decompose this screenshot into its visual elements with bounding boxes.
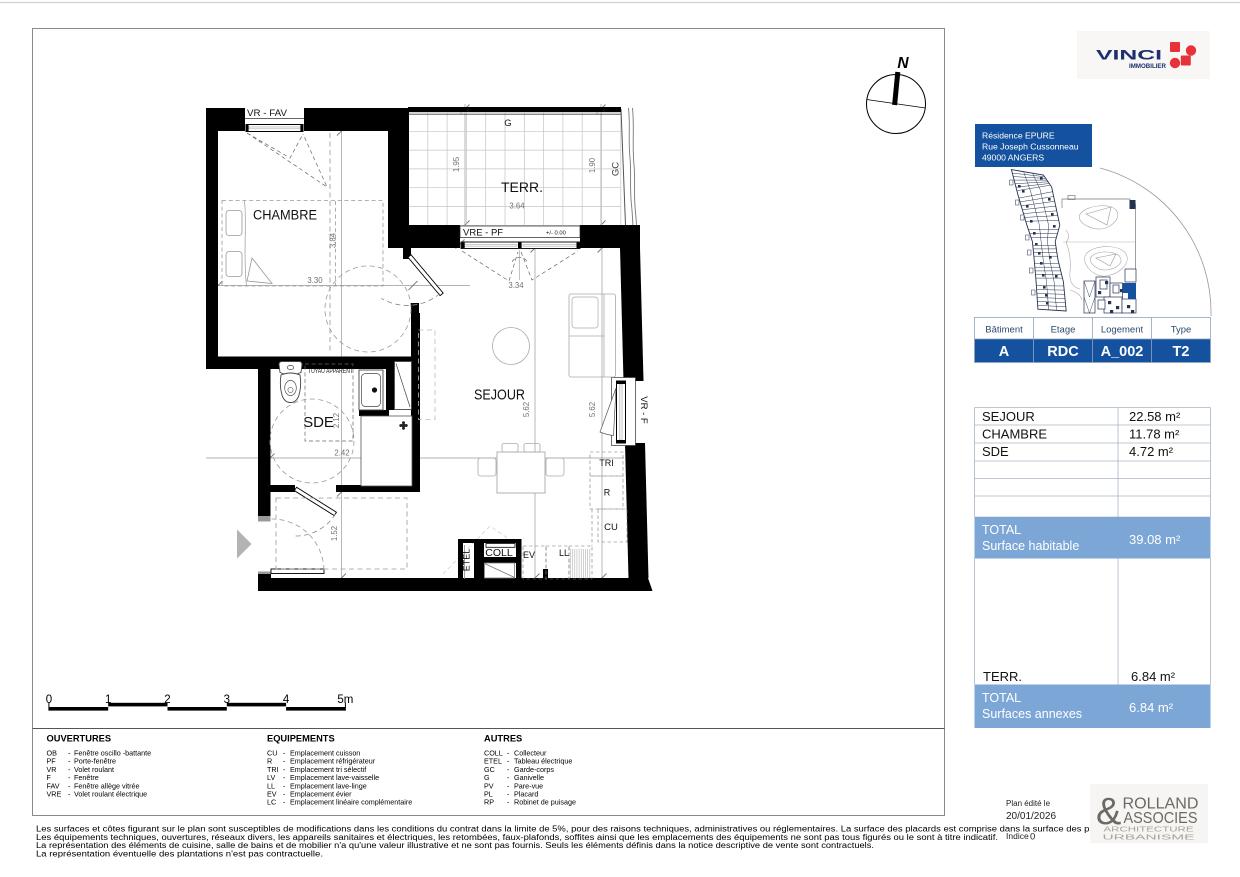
svg-text:Etage: Etage — [1051, 325, 1076, 336]
svg-text:Type: Type — [1171, 325, 1192, 336]
svg-text:6.84 m²: 6.84 m² — [1129, 700, 1174, 715]
svg-text:49000 ANGERS: 49000 ANGERS — [982, 153, 1044, 163]
svg-text:A: A — [999, 344, 1010, 360]
svg-text:OUVERTURES: OUVERTURES — [47, 734, 112, 744]
svg-text:-: - — [68, 790, 71, 799]
svg-text:Surfaces annexes: Surfaces annexes — [982, 707, 1082, 721]
svg-text:3.30: 3.30 — [307, 276, 323, 285]
svg-text:GC: GC — [611, 162, 622, 176]
svg-text:Indice: Indice — [1006, 831, 1029, 841]
svg-text:ARCHITECTURE: ARCHITECTURE — [1104, 827, 1195, 834]
svg-text:CHAMBRE: CHAMBRE — [253, 208, 317, 223]
svg-text:Logement: Logement — [1101, 325, 1144, 336]
svg-text:Volet roulant électrique: Volet roulant électrique — [74, 790, 147, 799]
svg-text:TRI: TRI — [599, 458, 614, 468]
svg-text:2.12: 2.12 — [332, 413, 341, 428]
svg-text:SDE: SDE — [303, 414, 334, 431]
svg-text:A_002: A_002 — [1101, 344, 1144, 360]
svg-text:VINCI: VINCI — [1096, 47, 1162, 63]
svg-text:SEJOUR: SEJOUR — [474, 388, 525, 404]
svg-text:SEJOUR: SEJOUR — [982, 409, 1035, 424]
svg-text:3.64: 3.64 — [509, 202, 525, 211]
svg-text:EQUIPEMENTS: EQUIPEMENTS — [267, 734, 335, 744]
svg-text:TOTAL: TOTAL — [982, 691, 1021, 705]
svg-text:4.72 m²: 4.72 m² — [1129, 444, 1174, 459]
svg-text:22.58 m²: 22.58 m² — [1129, 409, 1181, 424]
svg-text:3.84: 3.84 — [329, 232, 338, 248]
svg-text:0: 0 — [1030, 832, 1035, 843]
svg-text:39.08 m²: 39.08 m² — [1129, 532, 1181, 547]
svg-text:2.42: 2.42 — [334, 449, 349, 458]
svg-text:Rue Joseph Cussonneau: Rue Joseph Cussonneau — [982, 142, 1079, 152]
svg-text:VR - FAV: VR - FAV — [247, 108, 287, 118]
svg-text:CU: CU — [604, 522, 618, 533]
svg-text:SDE: SDE — [982, 444, 1009, 459]
svg-text:1.90: 1.90 — [588, 157, 597, 173]
svg-text:LL: LL — [559, 548, 569, 558]
svg-text:-: - — [283, 798, 286, 807]
svg-text:TERR.: TERR. — [501, 179, 543, 195]
svg-text:20/01/2026: 20/01/2026 — [1006, 811, 1056, 822]
svg-text:VRE - PF: VRE - PF — [463, 228, 503, 239]
svg-text:IMMOBILIER: IMMOBILIER — [1129, 63, 1166, 70]
svg-text:RDC: RDC — [1047, 344, 1079, 360]
svg-text:CHAMBRE: CHAMBRE — [982, 427, 1047, 442]
svg-text:ASSOCIES: ASSOCIES — [1124, 810, 1198, 827]
svg-text:VRE: VRE — [47, 790, 62, 799]
svg-text:LC: LC — [267, 798, 276, 807]
svg-text:Résidence EPURE: Résidence EPURE — [982, 131, 1055, 141]
svg-text:11.78 m²: 11.78 m² — [1129, 427, 1180, 442]
svg-text:Bâtiment: Bâtiment — [985, 325, 1023, 336]
svg-text:EV: EV — [523, 550, 535, 560]
svg-text:Plan édité le: Plan édité le — [1006, 799, 1051, 808]
svg-text:RP: RP — [484, 798, 494, 807]
svg-text:VR - F: VR - F — [638, 396, 649, 424]
svg-text:6.84 m²: 6.84 m² — [1131, 669, 1176, 684]
svg-text:Surface habitable: Surface habitable — [982, 539, 1079, 553]
svg-text:Robinet de puisage: Robinet de puisage — [514, 798, 576, 807]
svg-text:T2: T2 — [1173, 344, 1190, 360]
svg-text:TOTAL: TOTAL — [982, 523, 1021, 537]
svg-text:TERR.: TERR. — [983, 669, 1022, 684]
svg-text:+/- 0.00: +/- 0.00 — [546, 231, 566, 237]
svg-text:TUYAU APPARENT: TUYAU APPARENT — [308, 368, 353, 375]
svg-text:ETEL: ETEL — [462, 549, 472, 572]
svg-text:3.34: 3.34 — [508, 281, 524, 290]
svg-text:AUTRES: AUTRES — [484, 734, 522, 744]
svg-text:-: - — [507, 798, 510, 807]
svg-text:1.95: 1.95 — [452, 156, 461, 172]
svg-text:R: R — [604, 488, 611, 498]
svg-text:1.52: 1.52 — [330, 526, 339, 541]
svg-text:5.62: 5.62 — [522, 402, 531, 417]
svg-text:URBANISME: URBANISME — [1103, 835, 1196, 842]
svg-text:5.62: 5.62 — [588, 402, 597, 417]
svg-text:G: G — [504, 118, 511, 129]
svg-text:La représentation éventuelle d: La représentation éventuelle des plantat… — [36, 849, 323, 858]
svg-text:Emplacement linéaire complémen: Emplacement linéaire complémentaire — [290, 798, 412, 807]
svg-text:N: N — [897, 55, 909, 72]
